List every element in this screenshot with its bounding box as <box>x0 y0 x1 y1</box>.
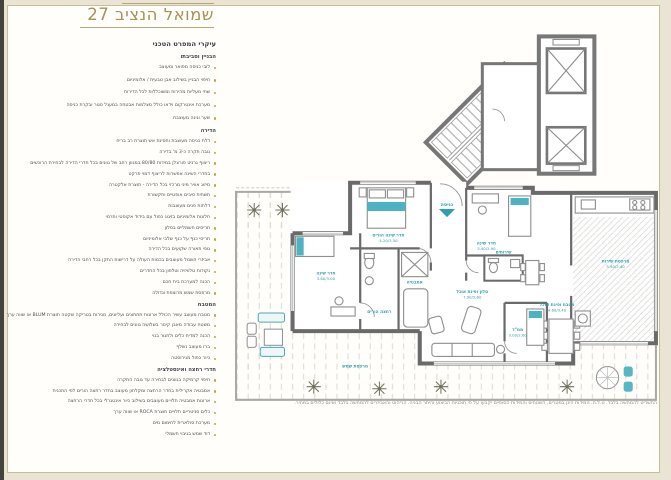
plan-disclaimer: התשריט להמחשה בלבד. ט.ל.ח. המידות הינן ב… <box>237 401 657 407</box>
bullet-icon <box>214 336 216 338</box>
spec-item-text: ריצוף גרניט פורצלן במידות 80/80 במגוון ר… <box>30 161 210 167</box>
spec-section-building: הבניין וסביבתו לובי כניסה מפואר ומעוצב ח… <box>6 54 216 121</box>
bullet-icon <box>214 292 216 294</box>
bullet-icon <box>214 412 216 414</box>
spec-item-text: לובי כניסה מפואר ומעוצב <box>159 65 210 71</box>
bullet-icon <box>214 141 216 143</box>
spec-item: גובה תקרה כ-3 מ' בדירה <box>6 150 216 156</box>
spec-item: דוד שמש בגיבוי חשמלי <box>6 432 216 438</box>
room-dims-kitchen: 4.60/3.40 <box>548 307 567 312</box>
spec-item: דלת כניסה מעוצבת וחסינת אש תוצרת רב בריח <box>6 139 216 145</box>
section-heading-apartment: הדירה <box>6 128 216 134</box>
bullet-icon <box>214 162 216 164</box>
room-label-terrace: מרפסת שמש <box>342 365 368 370</box>
spec-item-text: הכנה למדיח כלים ולתנור בנוי <box>152 334 210 340</box>
spec-item-text: מערכת אינטרקום וידאו כולל מצלמות אבטחה ב… <box>66 103 210 109</box>
spec-item: נקודות טלוויזיה וטלפון בכל החדרים <box>6 269 216 275</box>
brochure-page: { "page": { "title": "שמואל הנציב 27", "… <box>0 0 671 480</box>
spec-item-text: אמבטיה אקרילית בחדר הרחצה ומקלחון מעוצב … <box>53 389 211 395</box>
bullet-icon <box>214 67 216 69</box>
room-dims-master: 4.20/3.50 <box>379 238 398 243</box>
spec-item-text: כלים סניטריים תלויים תוצרת ROCA או שווה … <box>114 410 211 416</box>
spec-item: ברז מעוצב נשלף <box>6 345 216 351</box>
spec-item-text: משטח עבודה מאבן קיסר בשלושה גוונים לבחיר… <box>114 323 211 329</box>
spec-item: הכנה למדיח כלים ולתנור בנוי <box>6 334 216 340</box>
floor-plan: כניסה חדר שינה הורים 4.20/3.50 חדר שינה … <box>232 8 661 404</box>
spec-item: חיפוי הבניין בשילוב אבן טבעית / אלומיניו… <box>6 78 216 84</box>
spec-item-text: ארונות אמבטיה תלויים מעוצבים בשילוב כיור… <box>68 399 211 405</box>
bullet-icon <box>214 249 216 251</box>
section-heading-bathrooms: חדרי רחצה ואינסטלציה <box>6 367 216 373</box>
spec-item: אביזרי חשמל מעוצבים בכמות העולה על דרישו… <box>6 258 216 264</box>
spec-item: חלונות אלומיניום בזיגוג כפול עם בידוד אק… <box>6 215 216 221</box>
spec-section-bathrooms: חדרי רחצה ואינסטלציה חיפוי קרמיקה בגווני… <box>6 367 216 438</box>
spec-item: מרפסת שמש מרוצפת וגדולה <box>6 291 216 297</box>
spec-item-text: בחדרי השינה אפשרות לריצוף דמוי פרקט <box>128 172 210 178</box>
room-label-bath-parents: רחצה הורים <box>367 310 392 315</box>
spec-item-text: דוד שמש בגיבוי חשמלי <box>165 432 210 438</box>
spec-item: מערכת סולארית לחימום מים <box>6 421 216 427</box>
room-label-wc: שירותים <box>496 250 513 255</box>
spec-item: בחדרי השינה אפשרות לריצוף דמוי פרקט <box>6 172 216 178</box>
bullet-icon <box>214 152 216 154</box>
spec-item: ריצוף גרניט פורצלן במידות 80/80 במגוון ר… <box>6 161 216 167</box>
spec-item-text: מטבח מעוצב עשיר הכולל ארונות תחתונים ועל… <box>7 313 211 319</box>
bullet-icon <box>214 325 216 327</box>
bullet-icon <box>214 206 216 208</box>
title-rule-bottom <box>80 27 214 28</box>
bullet-icon <box>214 260 216 262</box>
spec-item: שער וגינה מעוצבת <box>6 116 216 122</box>
spec-item: מיזוג אוויר מיני מרכזי בכל הדירה - תוצרת… <box>6 183 216 189</box>
bullet-icon <box>214 217 216 219</box>
spec-item: אמבטיה אקרילית בחדר הרחצה ומקלחון מעוצב … <box>6 389 216 395</box>
spec-item-text: דלתות פנים מעוצבות <box>168 204 210 210</box>
spec-item-text: חיפוי קרמיקה בגוונים לבחירה עד גובה התקר… <box>117 378 210 384</box>
spec-item-text: נקודות טלוויזיה וטלפון בכל החדרים <box>140 269 210 275</box>
room-dims-mamad: 3.00/2.60 <box>508 333 527 338</box>
bullet-icon <box>214 314 216 316</box>
spec-item-text: גובה תקרה כ-3 מ' בדירה <box>159 150 210 156</box>
spec-item-text: ברז מעוצב נשלף <box>176 345 210 351</box>
page-edge-strip <box>0 0 4 480</box>
spec-item-text: מרפסת שמש מרוצפת וגדולה <box>152 291 210 297</box>
spec-item: גופי תאורה שקועים בכל הדירה <box>6 247 216 253</box>
spec-item: הכנה למערכת בית חכם <box>6 280 216 286</box>
bullet-icon <box>214 434 216 436</box>
spec-item-text: הכנה למערכת בית חכם <box>163 280 210 286</box>
bullet-icon <box>214 238 216 240</box>
room-dims-living: 7.90/5.60 <box>463 294 482 299</box>
spec-item: שתי מעליות מהירות ומשוכללות לכל הדירות <box>6 90 216 96</box>
bullet-icon <box>214 282 216 284</box>
bullet-icon <box>214 92 216 94</box>
spec-item-text: גופי תאורה שקועים בכל הדירה <box>149 247 211 253</box>
bullet-icon <box>214 358 216 360</box>
spec-item-text: כיור כפול מנירוסטה <box>171 356 210 362</box>
elevator-core <box>482 36 594 173</box>
spec-item: תריסי כנף על כנף שלבי אלומיניום <box>6 237 216 243</box>
spec-item-text: מערכת סולארית לחימום מים <box>153 421 210 427</box>
spec-item: כלים סניטריים תלויים תוצרת ROCA או שווה … <box>6 410 216 416</box>
spec-item: תריסים חשמליים בסלון <box>6 226 216 232</box>
room-label-bath: אמבטיה <box>407 281 423 286</box>
room-dims-service: 5.90/2.40 <box>606 264 625 269</box>
spec-item-text: אביזרי חשמל מעוצבים בכמות העולה על דרישו… <box>68 258 210 264</box>
bullet-icon <box>214 423 216 425</box>
entrance-label: כניסה <box>441 203 454 208</box>
bullet-icon <box>214 79 216 81</box>
section-heading-kitchen: המטבח <box>6 302 216 308</box>
spec-item-text: מיזוג אוויר מיני מרכזי בכל הדירה - תוצרת… <box>109 183 210 189</box>
bullet-icon <box>214 184 216 186</box>
spec-section-apartment: הדירה דלת כניסה מעוצבת וחסינת אש תוצרת ר… <box>6 128 216 296</box>
elevator-2 <box>547 127 585 170</box>
bullet-icon <box>214 227 216 229</box>
spec-item: ארונות אמבטיה תלויים מעוצבים בשילוב כיור… <box>6 399 216 405</box>
spec-item-text: תשתית סיבים אופטיים ותקשורת <box>147 193 210 199</box>
spec-item-text: תריסים חשמליים בסלון <box>165 226 210 232</box>
title-block: שמואל הנציב 27 <box>80 3 214 28</box>
spec-subtitle: עיקרי המפרט הטכני <box>6 40 216 48</box>
page-title: שמואל הנציב 27 <box>80 4 214 27</box>
spec-item-text: דלת כניסה מעוצבת וחסינת אש תוצרת רב בריח <box>116 139 210 145</box>
spec-item: מטבח מעוצב עשיר הכולל ארונות תחתונים ועל… <box>6 313 216 319</box>
bullet-icon <box>214 117 216 119</box>
bullet-icon <box>214 195 216 197</box>
spec-item-text: חלונות אלומיניום בזיגוג כפול עם בידוד אק… <box>106 215 210 221</box>
bullet-icon <box>214 401 216 403</box>
spec-item: חיפוי קרמיקה בגוונים לבחירה עד גובה התקר… <box>6 378 216 384</box>
room-dims-bedroom3: 3.40/2.90 <box>477 246 496 251</box>
spec-section-kitchen: המטבח מטבח מעוצב עשיר הכולל ארונות תחתונ… <box>6 302 216 362</box>
bullet-icon <box>214 390 216 392</box>
bullet-icon <box>214 271 216 273</box>
spec-item: משטח עבודה מאבן קיסר בשלושה גוונים לבחיר… <box>6 323 216 329</box>
bullet-icon <box>214 105 216 107</box>
spec-item: כיור כפול מנירוסטה <box>6 356 216 362</box>
bullet-icon <box>214 173 216 175</box>
spec-column: עיקרי המפרט הטכני הבניין וסביבתו לובי כנ… <box>6 40 216 443</box>
spec-item: תשתית סיבים אופטיים ותקשורת <box>6 193 216 199</box>
spec-item-text: חיפוי הבניין בשילוב אבן טבעית / אלומיניו… <box>127 78 210 84</box>
spec-item-text: שתי מעליות מהירות ומשוכללות לכל הדירות <box>124 90 210 96</box>
bullet-icon <box>214 347 216 349</box>
spec-item: מערכת אינטרקום וידאו כולל מצלמות אבטחה ב… <box>6 103 216 109</box>
section-heading-building: הבניין וסביבתו <box>6 54 216 60</box>
room-dims-bedroom2: 3.60/3.00 <box>317 276 336 281</box>
spec-item-text: תריסי כנף על כנף שלבי אלומיניום <box>143 237 210 243</box>
bullet-icon <box>214 379 216 381</box>
spec-item-text: שער וגינה מעוצבת <box>173 116 210 122</box>
spec-item: לובי כניסה מפואר ומעוצב <box>6 65 216 71</box>
spec-item: דלתות פנים מעוצבות <box>6 204 216 210</box>
floor-plan-svg: כניסה חדר שינה הורים 4.20/3.50 חדר שינה … <box>232 8 661 404</box>
elevator-1 <box>547 39 585 92</box>
